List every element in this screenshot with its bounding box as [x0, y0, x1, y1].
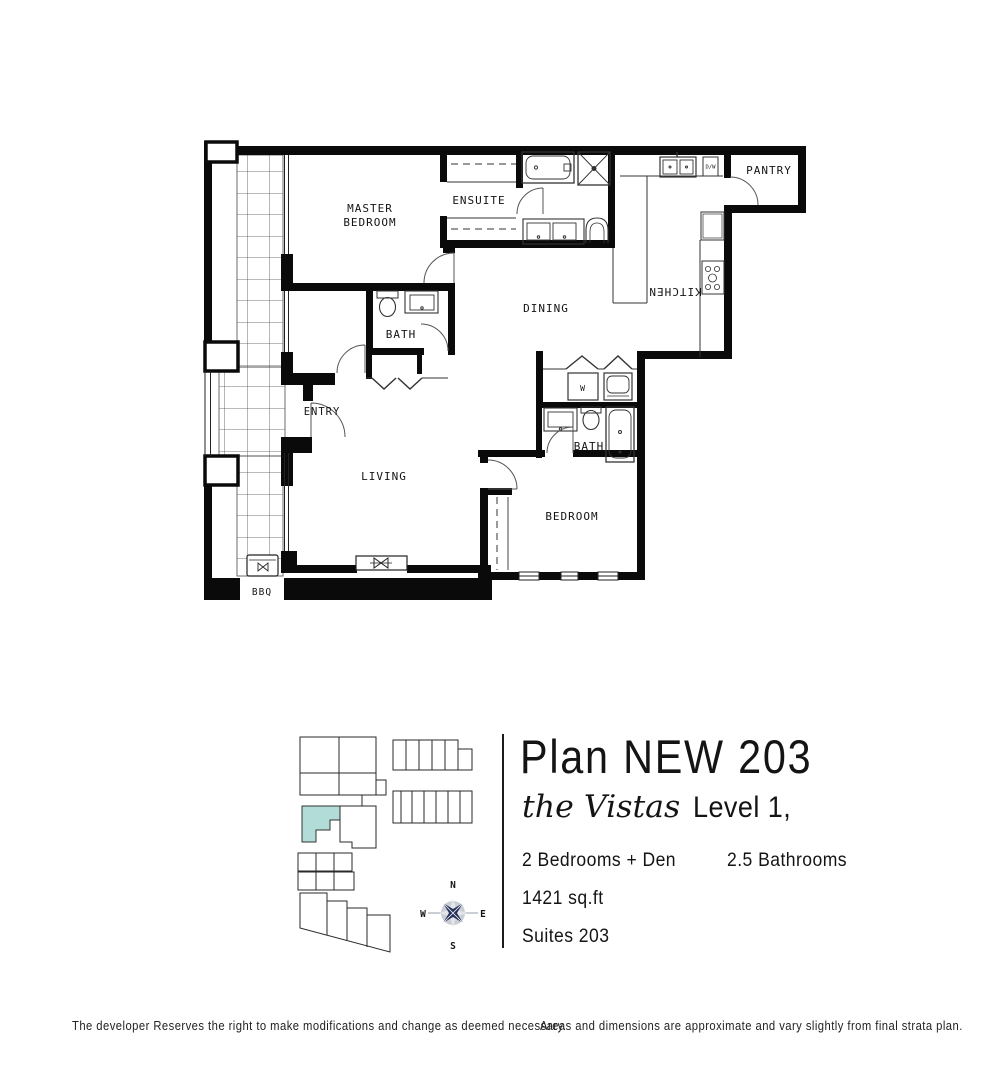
label-bedroom: BEDROOM	[545, 510, 598, 523]
label-kitchen: KITCHEN	[648, 285, 701, 298]
bedroom-windows	[519, 572, 618, 580]
floor-plan-drawing: MASTER BEDROOM ENSUITE PANTRY KITCHEN DI…	[0, 0, 1000, 1072]
label-master-bedroom-2: BEDROOM	[343, 216, 396, 229]
compass-south-label: S	[450, 941, 456, 952]
walls-thick	[204, 141, 806, 600]
compass-north-label: N	[450, 880, 456, 891]
label-dishwasher: D/W	[706, 165, 717, 171]
label-pantry: PANTRY	[746, 164, 792, 177]
label-ensuite: ENSUITE	[452, 194, 505, 207]
label-bbq: BBQ	[252, 587, 272, 598]
bbq-grill	[247, 555, 278, 576]
label-bath-upper: BATH	[386, 328, 417, 341]
label-bath-lower: BATH	[574, 440, 605, 453]
label-living: LIVING	[361, 470, 407, 483]
compass-icon: N E S W	[420, 880, 486, 952]
living-window	[356, 556, 407, 570]
label-entry: ENTRY	[304, 406, 341, 418]
label-master-bedroom-1: MASTER	[347, 202, 393, 215]
key-plan-highlight-unit	[302, 806, 340, 842]
compass-east-label: E	[480, 909, 486, 920]
label-washer: W	[580, 384, 586, 393]
compass-west-label: W	[420, 909, 426, 920]
page: MASTER BEDROOM ENSUITE PANTRY KITCHEN DI…	[0, 0, 1000, 1072]
label-dining: DINING	[523, 302, 569, 315]
